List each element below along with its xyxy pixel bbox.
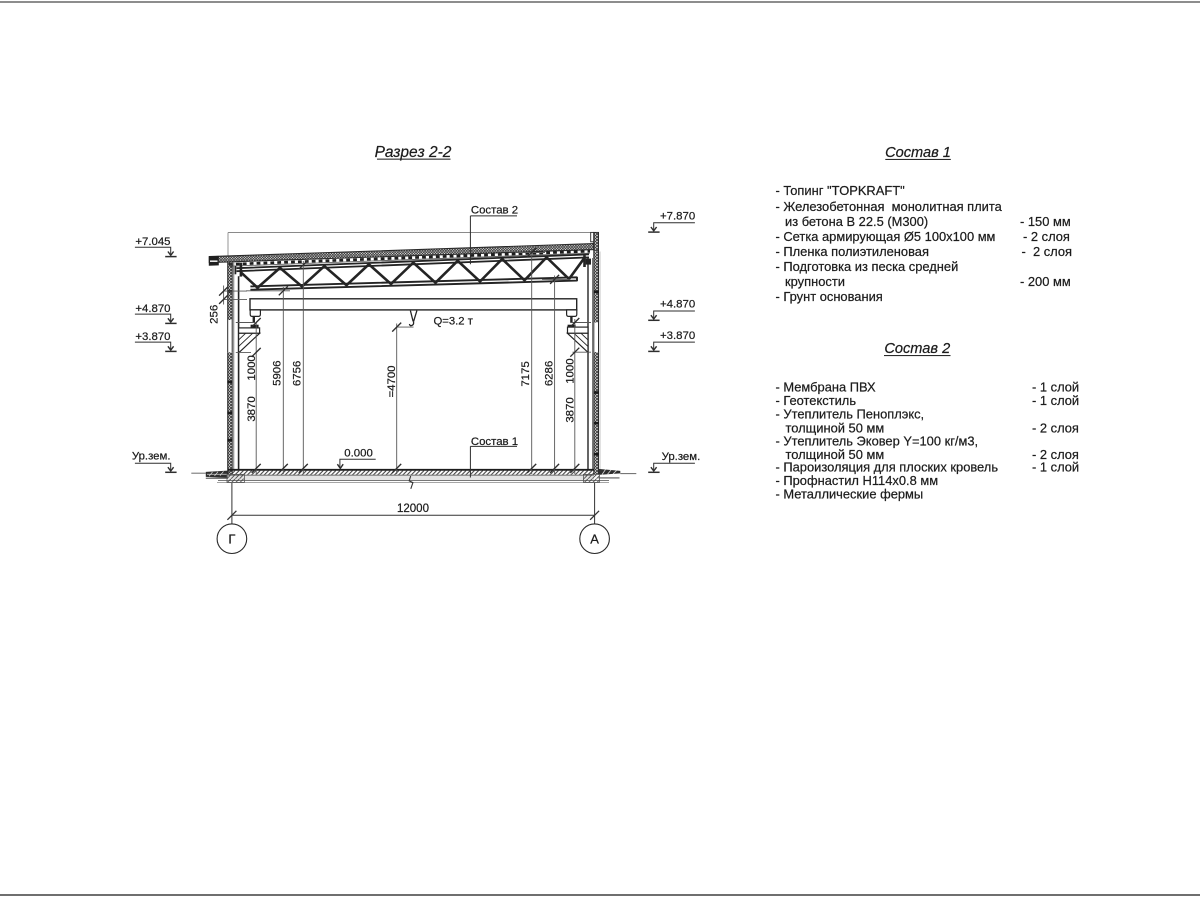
svg-text:1000: 1000 — [564, 358, 576, 383]
svg-text:Состав 2: Состав 2 — [884, 341, 950, 357]
svg-text:+3.870: +3.870 — [660, 330, 695, 342]
svg-text:- Железобетонная монолитная п: - Железобетонная монолитная плита — [776, 199, 1003, 214]
svg-text:+7.870: +7.870 — [660, 211, 695, 223]
svg-text:+4.870: +4.870 — [660, 299, 695, 311]
svg-text:5906: 5906 — [272, 361, 284, 386]
svg-text:Ур.зем.: Ур.зем. — [132, 450, 171, 462]
svg-text:Q=3.2 т: Q=3.2 т — [434, 315, 473, 327]
svg-text:- Топинг "TOPKRAFT": - Топинг "TOPKRAFT" — [776, 183, 906, 198]
svg-text:3870: 3870 — [564, 397, 576, 422]
svg-text:- 200 мм: - 200 мм — [1020, 274, 1071, 289]
svg-text:6286: 6286 — [544, 361, 556, 386]
svg-text:крупности: крупности — [785, 274, 845, 289]
svg-text:из бетона В 22.5 (М300): из бетона В 22.5 (М300) — [785, 214, 928, 229]
svg-text:+4.870: +4.870 — [135, 303, 170, 315]
svg-text:А: А — [590, 532, 599, 547]
svg-text:+3.870: +3.870 — [135, 331, 170, 343]
svg-text:=4700: =4700 — [386, 366, 398, 398]
svg-text:Ур.зем.: Ур.зем. — [662, 451, 701, 463]
svg-text:- Грунт основания: - Грунт основания — [776, 289, 883, 304]
svg-text:- Пленка полиэтиленовая: - Пленка полиэтиленовая — [776, 244, 929, 259]
svg-text:- 2 слоя: - 2 слоя — [1032, 420, 1079, 435]
svg-text:Состав 1: Состав 1 — [885, 145, 951, 161]
svg-text:Разрез 2-2: Разрез 2-2 — [375, 144, 452, 161]
svg-text:- 2 слоя: - 2 слоя — [1023, 229, 1070, 244]
svg-text:256: 256 — [208, 305, 220, 324]
svg-text:- Подготовка из песка средней: - Подготовка из песка средней — [776, 259, 959, 274]
svg-text:Г: Г — [228, 532, 235, 547]
svg-text:Состав 2: Состав 2 — [471, 204, 518, 216]
svg-text:- Металлические фермы: - Металлические фермы — [776, 487, 924, 502]
svg-text:0.000: 0.000 — [344, 448, 373, 460]
svg-text:3870: 3870 — [246, 396, 258, 421]
svg-text:- 1 слой: - 1 слой — [1032, 393, 1079, 408]
svg-text:- 150 мм: - 150 мм — [1020, 214, 1071, 229]
svg-text:- Сетка армирующая Ø5 100х100: - Сетка армирующая Ø5 100х100 мм — [776, 229, 996, 244]
svg-text:- 2 слоя: - 2 слоя — [1022, 244, 1072, 259]
svg-text:6756: 6756 — [292, 361, 304, 386]
svg-text:+7.045: +7.045 — [135, 236, 170, 248]
svg-text:7175: 7175 — [520, 361, 532, 386]
svg-text:1000: 1000 — [246, 355, 258, 380]
svg-text:- 1 слой: - 1 слой — [1032, 460, 1079, 475]
svg-text:12000: 12000 — [397, 503, 429, 515]
